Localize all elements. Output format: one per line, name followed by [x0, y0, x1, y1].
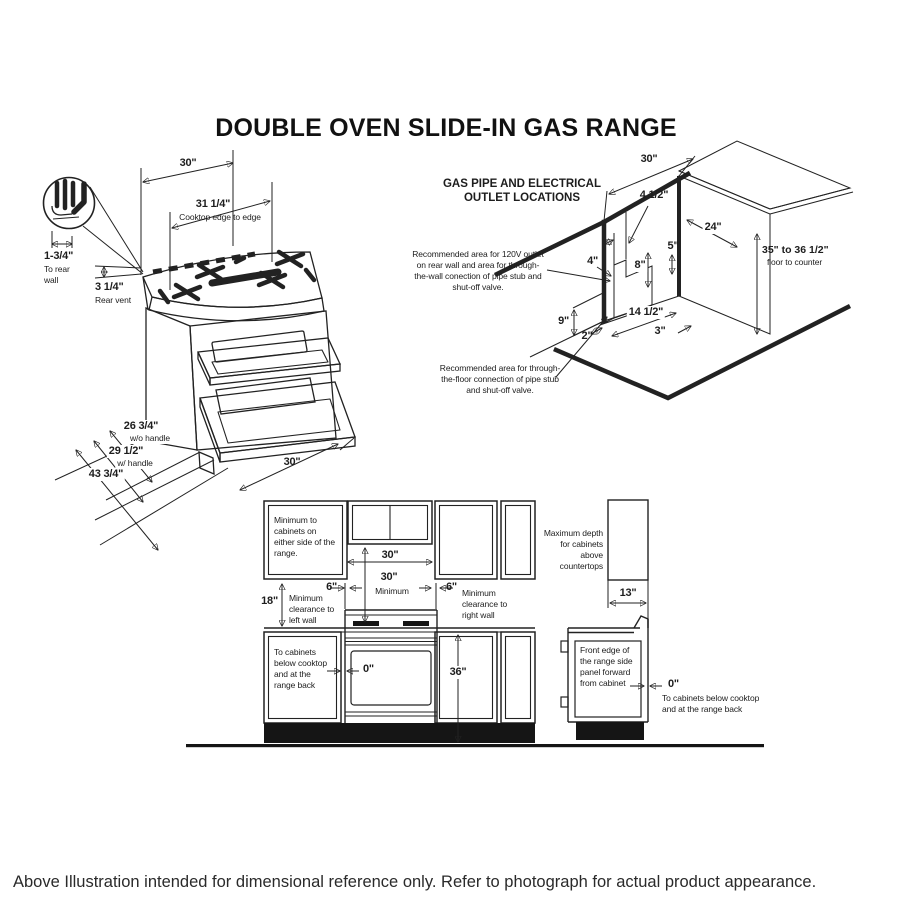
dim-area-height: 8"	[633, 259, 648, 272]
note-max-depth: Maximum depth for cabinets above counter…	[539, 528, 603, 572]
dim-min-height: 30"	[381, 571, 398, 584]
gas-heading: GAS PIPE AND ELECTRICAL OUTLET LOCATIONS	[433, 177, 611, 206]
dim-cooktop-width-note: Cooktop edge to edge	[179, 212, 261, 223]
dim-rear-gap-note: To rear wall	[44, 264, 78, 286]
dim-zero-right: 0"	[668, 678, 679, 691]
dim-rear-vent: 3 1/4"	[95, 281, 123, 294]
dim-counter-depth: 24"	[703, 221, 724, 234]
dim-cooktop-width: 31 1/4"	[196, 198, 230, 211]
dim-3: 3"	[655, 325, 666, 338]
dim-area-offset: 4"	[587, 255, 598, 268]
dim-depth-wo-handle: 26 3/4"	[122, 420, 160, 433]
dim-floor-offset: 2"	[582, 330, 593, 343]
note-side-cabinets: Minimum to cabinets on either side of th…	[274, 515, 336, 559]
dim-counter-height: 35" to 36 1/2"	[762, 244, 829, 257]
dim-rear-gap: 1-3/4"	[44, 250, 73, 263]
dim-5: 5"	[668, 240, 679, 253]
floor-line	[186, 744, 764, 747]
page-title: DOUBLE OVEN SLIDE-IN GAS RANGE	[215, 113, 677, 144]
dim-depth-w-handle: 29 1/2"	[107, 445, 145, 458]
dim-wall-width: 30"	[641, 153, 658, 166]
diagram-page: DOUBLE OVEN SLIDE-IN GAS RANGE Above Ill…	[0, 0, 900, 900]
note-cabinets-below-right: To cabinets below cooktop and at the ran…	[662, 693, 772, 715]
dim-top-width: 30"	[382, 549, 399, 562]
dim-counter-height-36: 36"	[448, 666, 469, 679]
gas-wall-note: Recommended area for 120V outlet on rear…	[410, 249, 546, 293]
dim-depth-door-open: 43 3/4"	[87, 468, 125, 481]
dim-floor-width: 14 1/2"	[627, 306, 665, 319]
dim-cabinet-depth: 13"	[620, 587, 637, 600]
note-right-wall: Minimum clearance to right wall	[462, 588, 520, 621]
burner-detail-callout	[44, 178, 95, 229]
note-front-edge: Front edge of the range side panel forwa…	[580, 645, 638, 689]
dim-9: 9"	[558, 315, 569, 328]
burner-right	[403, 621, 429, 626]
dim-depth-wo-handle-note: w/o handle	[128, 433, 172, 444]
dim-width-bottom: 30"	[284, 456, 301, 469]
dim-min-height-note: Minimum	[375, 586, 409, 597]
dim-zero-left: 0"	[363, 663, 374, 676]
dim-rear-vent-note: Rear vent	[95, 295, 131, 306]
gas-floor-note: Recommended area for through-the-floor c…	[438, 363, 562, 396]
dim-right-clearance: 6"	[446, 581, 457, 594]
side-toe-kick	[576, 722, 644, 740]
footer-note: Above Illustration intended for dimensio…	[13, 872, 816, 892]
burner-left	[353, 621, 379, 626]
dim-area-width: 4 1/2"	[640, 189, 668, 202]
note-cabinets-below: To cabinets below cooktop and at the ran…	[274, 647, 328, 691]
note-left-wall: Minimum clearance to left wall	[289, 593, 337, 626]
dim-left-wall-gap: 18"	[261, 595, 278, 608]
dim-width-top: 30"	[180, 157, 197, 170]
toe-kick	[264, 723, 535, 743]
dim-counter-height-note: floor to counter	[767, 257, 822, 268]
